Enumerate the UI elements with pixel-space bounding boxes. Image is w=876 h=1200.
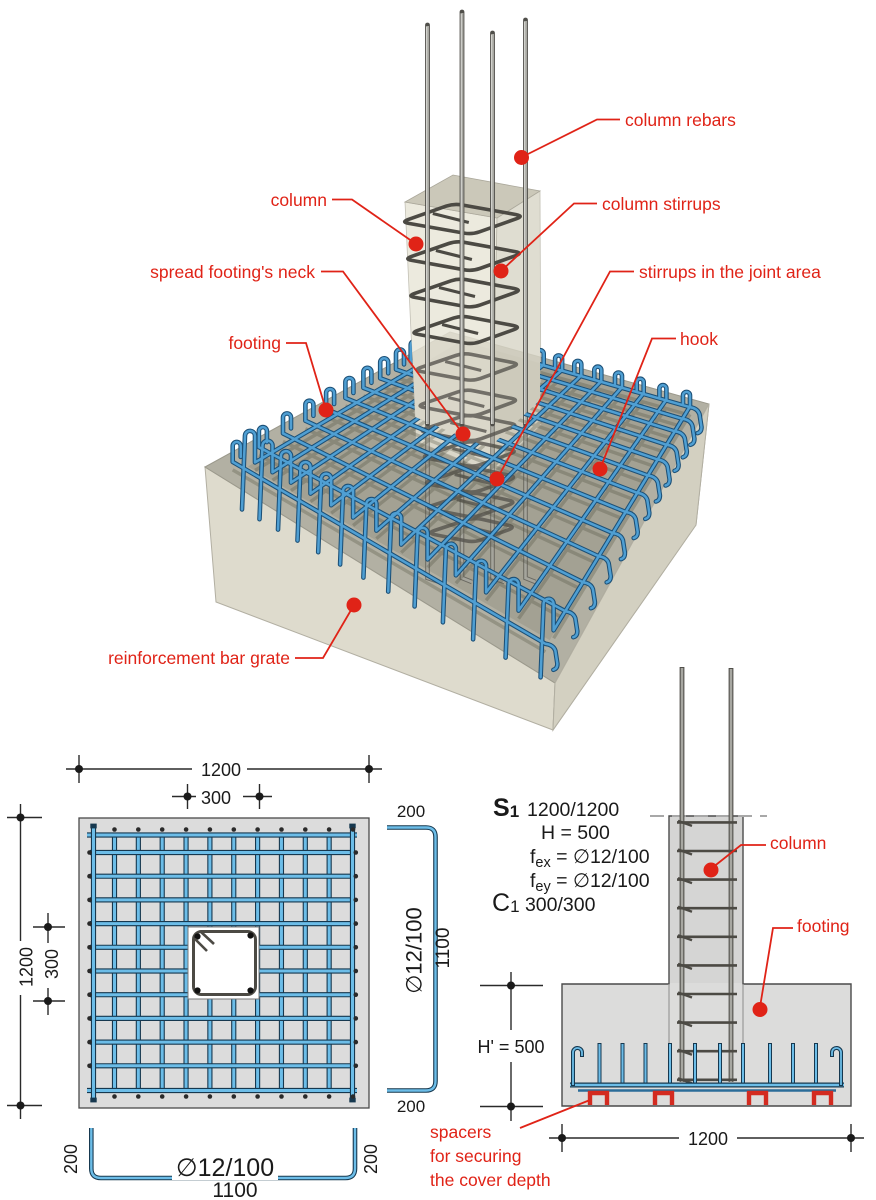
svg-text:footing: footing	[797, 916, 850, 936]
svg-text:column rebars: column rebars	[625, 110, 736, 130]
svg-text:reinforcement bar grate: reinforcement bar grate	[108, 648, 290, 668]
svg-text:the cover depth: the cover depth	[430, 1170, 551, 1190]
svg-text:1100: 1100	[212, 1179, 257, 1200]
svg-text:1100: 1100	[433, 928, 454, 969]
svg-text:1200: 1200	[201, 760, 241, 780]
svg-text:for securing: for securing	[430, 1146, 521, 1166]
svg-text:200: 200	[397, 1097, 425, 1116]
svg-text:C1 300/300: C1 300/300	[492, 889, 596, 917]
svg-text:1200: 1200	[688, 1129, 728, 1149]
svg-text:H' = 500: H' = 500	[478, 1037, 545, 1057]
svg-text:1200/1200: 1200/1200	[527, 799, 619, 821]
svg-text:spread footing's neck: spread footing's neck	[150, 262, 315, 282]
svg-text:200: 200	[397, 802, 425, 821]
svg-text:column stirrups: column stirrups	[602, 194, 721, 214]
svg-text:column: column	[770, 833, 826, 853]
svg-text:300: 300	[42, 949, 62, 979]
svg-text:200: 200	[361, 1144, 381, 1174]
svg-text:column: column	[271, 190, 327, 210]
svg-text:hook: hook	[680, 329, 718, 349]
svg-text:spacers: spacers	[430, 1122, 492, 1142]
svg-text:stirrups in the joint area: stirrups in the joint area	[639, 262, 821, 282]
svg-text:∅12/100: ∅12/100	[176, 1154, 274, 1182]
svg-text:footing: footing	[228, 333, 281, 353]
svg-text:H = 500: H = 500	[541, 822, 610, 844]
svg-text:∅12/100: ∅12/100	[402, 907, 427, 993]
svg-text:300: 300	[201, 788, 231, 808]
svg-text:1200: 1200	[17, 947, 37, 987]
svg-text:200: 200	[61, 1144, 81, 1174]
